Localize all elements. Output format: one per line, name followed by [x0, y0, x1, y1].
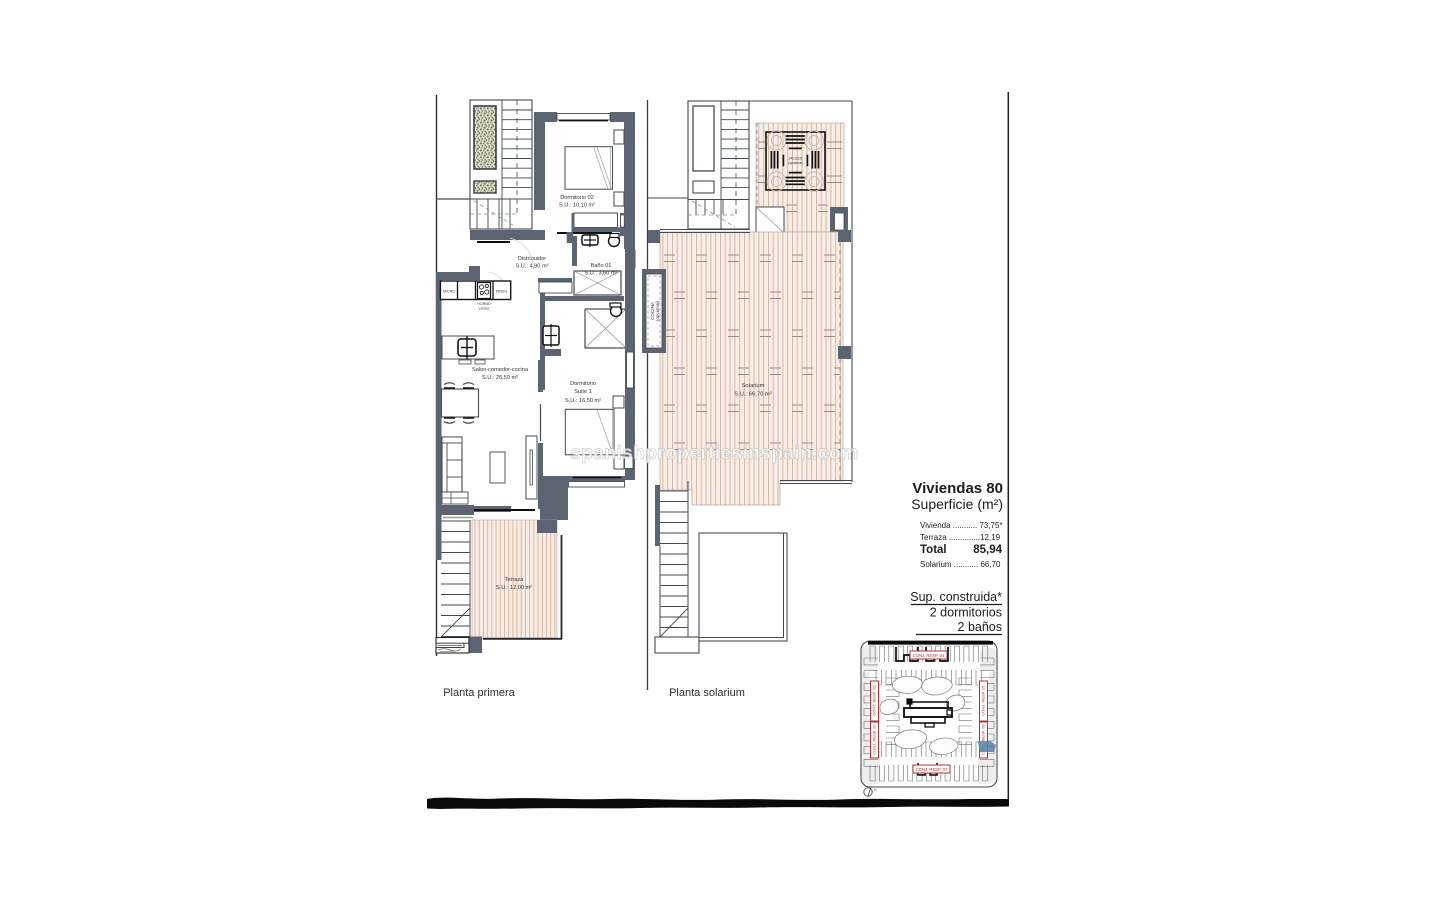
- svg-text:HORNO: HORNO: [477, 302, 491, 306]
- svg-text:Terraza: Terraza: [505, 577, 525, 583]
- svg-text:FRIGO: FRIGO: [496, 290, 508, 294]
- svg-text:Salon-comedor-cocina: Salon-comedor-cocina: [472, 367, 529, 373]
- svg-text:2 dormitorios: 2 dormitorios: [930, 606, 1002, 620]
- svg-text:JACUZZI: JACUZZI: [789, 157, 803, 161]
- svg-text:Terraza ..............12,19: Terraza ..............12,19: [920, 533, 1001, 542]
- svg-text:Viviendas 80: Viviendas 80: [912, 480, 1003, 497]
- svg-text:CONJ. RESP. 02: CONJ. RESP. 02: [872, 724, 877, 755]
- svg-text:(opcional): (opcional): [788, 161, 803, 165]
- svg-text:Superficie (m²): Superficie (m²): [911, 496, 1003, 512]
- svg-text:Total: Total: [920, 544, 947, 556]
- svg-text:CONJ. RESP. 05: CONJ. RESP. 05: [981, 685, 986, 716]
- svg-text:MICRO: MICRO: [443, 290, 455, 294]
- svg-text:Dormitorio: Dormitorio: [570, 381, 596, 387]
- svg-text:Dormitorio 02: Dormitorio 02: [560, 195, 594, 201]
- svg-text:S.U.: 4,80 m²: S.U.: 4,80 m²: [516, 264, 549, 270]
- svg-text:Solarium ........... 66,70: Solarium ........... 66,70: [920, 560, 1001, 569]
- svg-text:S.U.: 10,10 m²: S.U.: 10,10 m²: [559, 203, 595, 209]
- svg-text:CONJ. RESP. 07: CONJ. RESP. 07: [916, 767, 948, 772]
- svg-text:2 baños: 2 baños: [958, 620, 1002, 634]
- svg-text:CONJ. RESP. 04: CONJ. RESP. 04: [913, 653, 945, 658]
- svg-text:Suite 1: Suite 1: [574, 389, 591, 395]
- svg-text:S.U.: 3,60 m²: S.U.: 3,60 m²: [585, 271, 618, 277]
- svg-text:S.U.: 12,00 m²: S.U.: 12,00 m²: [496, 585, 532, 591]
- svg-text:spanishpropertiesinspain.com: spanishpropertiesinspain.com: [570, 442, 858, 464]
- svg-text:Vivienda ........... 73,75*: Vivienda ........... 73,75*: [920, 521, 1003, 530]
- svg-text:85,94: 85,94: [973, 544, 1002, 556]
- svg-text:VITRO: VITRO: [479, 307, 490, 311]
- svg-text:CONJ. RESP. 03: CONJ. RESP. 03: [872, 685, 877, 716]
- svg-text:S.U.: 16,50 m²: S.U.: 16,50 m²: [565, 398, 601, 404]
- svg-text:Baño 01: Baño 01: [591, 263, 612, 269]
- svg-text:Planta primera: Planta primera: [443, 687, 515, 699]
- svg-text:(opcional): (opcional): [655, 300, 660, 321]
- svg-text:Sup. construida*: Sup. construida*: [910, 590, 1002, 604]
- svg-text:Solarium: Solarium: [742, 383, 765, 389]
- svg-text:Planta solarium: Planta solarium: [669, 687, 745, 699]
- svg-text:S.U.: 66,70 m²: S.U.: 66,70 m²: [734, 392, 771, 398]
- svg-text:S.U.: 25,50 m²: S.U.: 25,50 m²: [482, 375, 518, 381]
